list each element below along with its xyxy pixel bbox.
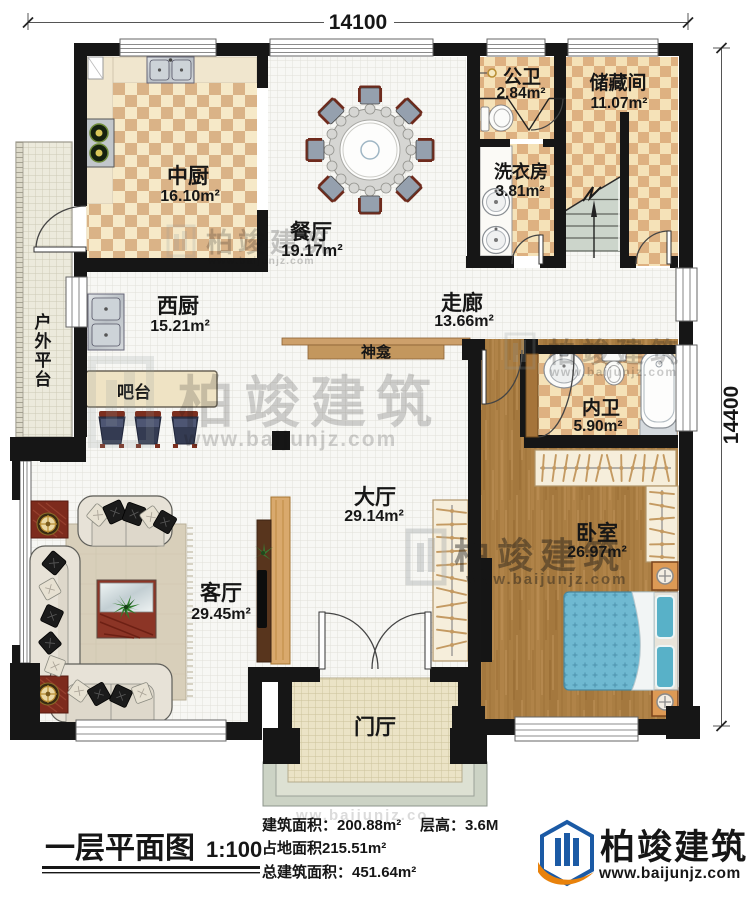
svg-text:www.baijunjz.com: www.baijunjz.com xyxy=(465,571,627,588)
svg-text:5.90m²: 5.90m² xyxy=(573,418,622,435)
svg-text:总建筑面积：451.64m²: 总建筑面积：451.64m² xyxy=(262,863,416,881)
svg-text:门厅: 门厅 xyxy=(354,715,396,739)
svg-text:2.84m²: 2.84m² xyxy=(496,85,545,102)
svg-text:13.66m²: 13.66m² xyxy=(434,313,494,330)
svg-text:www.baijunjz.com: www.baijunjz.com xyxy=(207,255,315,267)
svg-text:柏竣建筑: 柏竣建筑 xyxy=(206,227,334,258)
svg-text:走廊: 走廊 xyxy=(441,291,483,315)
svg-text:中厨: 中厨 xyxy=(167,165,209,188)
svg-text:内卫: 内卫 xyxy=(582,396,620,419)
svg-text:储藏间: 储藏间 xyxy=(589,71,646,94)
svg-text:洗衣房: 洗衣房 xyxy=(494,161,548,182)
svg-text:西厨: 西厨 xyxy=(157,295,199,318)
svg-text:14100: 14100 xyxy=(329,11,387,34)
svg-text:大厅: 大厅 xyxy=(354,486,396,509)
svg-text:户: 户 xyxy=(35,312,52,332)
svg-text:柏竣建筑: 柏竣建筑 xyxy=(600,827,748,867)
svg-text:客厅: 客厅 xyxy=(200,581,242,605)
svg-text:www.baijunjz.com: www.baijunjz.com xyxy=(183,428,397,451)
svg-text:建筑面积：200.88m²: 建筑面积：200.88m² xyxy=(262,816,401,834)
svg-text:层高：3.6M: 层高：3.6M xyxy=(420,816,498,834)
svg-text:29.14m²: 29.14m² xyxy=(344,508,404,525)
svg-text:15.21m²: 15.21m² xyxy=(150,318,210,335)
svg-text:台: 台 xyxy=(35,369,52,389)
svg-text:神龛: 神龛 xyxy=(361,343,392,361)
svg-text:www.baijunjz.com: www.baijunjz.com xyxy=(549,365,678,379)
svg-text:1:100: 1:100 xyxy=(206,837,262,862)
svg-text:一层平面图: 一层平面图 xyxy=(45,832,195,865)
svg-text:14400: 14400 xyxy=(720,386,743,444)
svg-text:www.baijunjz.com: www.baijunjz.com xyxy=(598,865,741,882)
svg-text:16.10m²: 16.10m² xyxy=(160,188,220,205)
svg-text:柏竣建筑: 柏竣建筑 xyxy=(548,336,684,368)
svg-text:29.45m²: 29.45m² xyxy=(191,606,251,623)
svg-text:占地面积215.51m²: 占地面积215.51m² xyxy=(262,839,386,857)
svg-text:11.07m²: 11.07m² xyxy=(591,95,648,112)
svg-text:3.81m²: 3.81m² xyxy=(495,183,544,200)
svg-text:外: 外 xyxy=(35,331,52,351)
svg-text:柏竣建筑: 柏竣建筑 xyxy=(454,535,626,576)
svg-text:平: 平 xyxy=(35,351,52,370)
svg-text:柏竣建筑: 柏竣建筑 xyxy=(178,371,442,434)
